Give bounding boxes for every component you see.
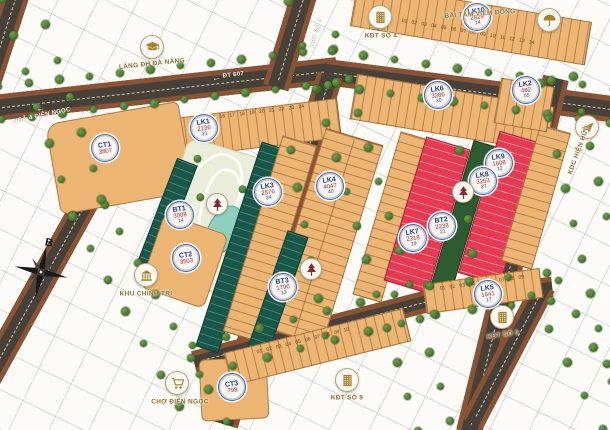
tree xyxy=(355,85,364,94)
road-arrow: → xyxy=(540,59,550,70)
arrow-icon: → xyxy=(462,20,479,39)
tree xyxy=(545,325,553,333)
tree xyxy=(547,297,555,305)
tree xyxy=(572,310,580,318)
tree xyxy=(255,324,264,333)
tree xyxy=(343,188,350,195)
block-count: 21 xyxy=(440,230,446,236)
block-count: 17 xyxy=(486,298,492,304)
tree xyxy=(263,353,272,362)
tree xyxy=(455,146,464,155)
tree xyxy=(446,417,454,425)
tree xyxy=(331,336,339,344)
tree xyxy=(68,212,77,221)
master-plan-map: 01 02 03 04 05 06 07 08 09 10 11 12 13 1… xyxy=(0,0,610,430)
tree xyxy=(87,245,94,252)
tree xyxy=(373,291,380,298)
arrow-icon: ← xyxy=(211,72,221,83)
road-arrow: → xyxy=(462,20,479,39)
block-count: 24 xyxy=(266,196,272,202)
tree xyxy=(599,425,607,430)
tree xyxy=(157,371,165,379)
tree xyxy=(437,383,444,390)
tree xyxy=(594,177,603,186)
tree xyxy=(299,48,307,56)
tree xyxy=(189,342,196,349)
tree xyxy=(301,221,308,228)
arrow-icon: → xyxy=(540,59,550,70)
tree xyxy=(299,42,306,49)
block-count: 05 xyxy=(524,94,530,100)
tree xyxy=(586,142,594,150)
tree xyxy=(90,165,97,172)
tree xyxy=(375,178,382,185)
building-icon xyxy=(490,305,514,329)
tree xyxy=(528,292,535,299)
tree xyxy=(22,68,29,75)
tree xyxy=(404,393,411,400)
compass-rose xyxy=(7,238,76,307)
tree xyxy=(569,72,578,81)
tree xyxy=(55,75,64,84)
tree xyxy=(579,81,586,88)
tree xyxy=(104,276,112,284)
park-tree-icon xyxy=(300,258,322,280)
park-tree-icon xyxy=(452,181,474,203)
tree xyxy=(9,31,18,40)
building-icon xyxy=(335,368,359,392)
tree xyxy=(211,92,219,100)
tree xyxy=(207,59,215,67)
tree xyxy=(561,184,570,193)
tree xyxy=(170,323,177,330)
building-icon xyxy=(368,5,392,29)
tree xyxy=(0,116,5,123)
cart-icon xyxy=(165,371,189,395)
tree xyxy=(0,83,2,90)
block-count: 13 xyxy=(281,291,287,297)
landmark-kdt-so-9-label: KĐT SỐ 9 xyxy=(331,395,363,402)
block-area: 798 xyxy=(227,387,238,394)
tree xyxy=(603,360,610,368)
tree xyxy=(563,358,572,367)
tree xyxy=(314,294,323,303)
tree xyxy=(302,82,310,90)
block-count: 21 xyxy=(202,132,208,138)
tree xyxy=(391,56,398,63)
landmark-kdt-so-4-label: KĐT SỐ 4 xyxy=(365,33,397,40)
block-count: 30 xyxy=(436,99,442,105)
tree xyxy=(272,86,279,93)
tree xyxy=(422,60,430,68)
tree xyxy=(589,343,598,352)
tree xyxy=(222,333,230,341)
tree xyxy=(578,108,585,115)
tree xyxy=(54,57,61,64)
tree xyxy=(416,315,424,323)
tree xyxy=(287,146,295,154)
road-label-k-t-s-7: KĐT SỐ 7 xyxy=(310,18,325,49)
tree xyxy=(391,291,398,298)
road-label-text: KĐT SỐ 7 xyxy=(310,18,325,49)
block-count: 12 xyxy=(497,167,503,173)
tree xyxy=(387,90,394,97)
tree xyxy=(385,212,393,220)
tree xyxy=(116,228,123,235)
tree xyxy=(25,79,33,87)
tree xyxy=(606,119,610,127)
tree xyxy=(90,106,97,113)
tree xyxy=(181,96,188,103)
block-count: 14 xyxy=(178,219,184,225)
tree xyxy=(332,153,341,162)
tree xyxy=(586,289,595,298)
tree xyxy=(353,222,361,230)
tree xyxy=(453,64,462,73)
tree xyxy=(345,76,352,83)
tree xyxy=(150,99,159,108)
tree xyxy=(430,310,438,318)
tree xyxy=(570,220,577,227)
block-count: 40 xyxy=(328,190,334,196)
tree xyxy=(603,213,610,220)
tree xyxy=(406,281,413,288)
tree xyxy=(293,183,302,192)
tree xyxy=(555,277,562,284)
block-count: 19 xyxy=(411,242,417,248)
block-area: 3503 xyxy=(179,258,193,266)
tree xyxy=(393,358,402,367)
tree xyxy=(58,176,65,183)
tree xyxy=(237,55,246,64)
tree xyxy=(468,249,477,258)
tree xyxy=(41,20,50,29)
tree xyxy=(425,348,434,357)
tree xyxy=(595,325,602,332)
tree xyxy=(468,305,477,314)
tree xyxy=(241,88,250,97)
park-tree-icon xyxy=(206,193,228,215)
block-count: 27 xyxy=(481,185,487,191)
umbrella-icon xyxy=(537,8,561,32)
tree xyxy=(121,307,130,316)
tree xyxy=(512,106,520,114)
tree xyxy=(464,215,472,223)
tree xyxy=(359,51,368,60)
tree xyxy=(578,255,586,263)
tree xyxy=(45,139,54,148)
road-label-text: ĐT 607 xyxy=(222,71,244,80)
graduation-cap-icon xyxy=(140,35,164,59)
tree xyxy=(328,47,336,55)
tree xyxy=(581,392,588,399)
government-icon xyxy=(134,263,158,287)
tree xyxy=(322,119,330,127)
tree xyxy=(553,150,561,158)
tree xyxy=(324,81,332,89)
tree xyxy=(140,340,147,347)
road-west-south xyxy=(0,196,97,430)
tree xyxy=(543,269,551,277)
landmark-cho-dien-ngoc-label: CHỢ ĐIỆN NGỌC xyxy=(151,399,208,406)
landmark-khu-chinh-tri-label: KHU CHÍNH TRỊ xyxy=(120,291,173,298)
tree xyxy=(86,73,93,80)
block-area: 3807 xyxy=(98,148,112,156)
tree xyxy=(485,69,492,76)
tree xyxy=(332,31,339,38)
